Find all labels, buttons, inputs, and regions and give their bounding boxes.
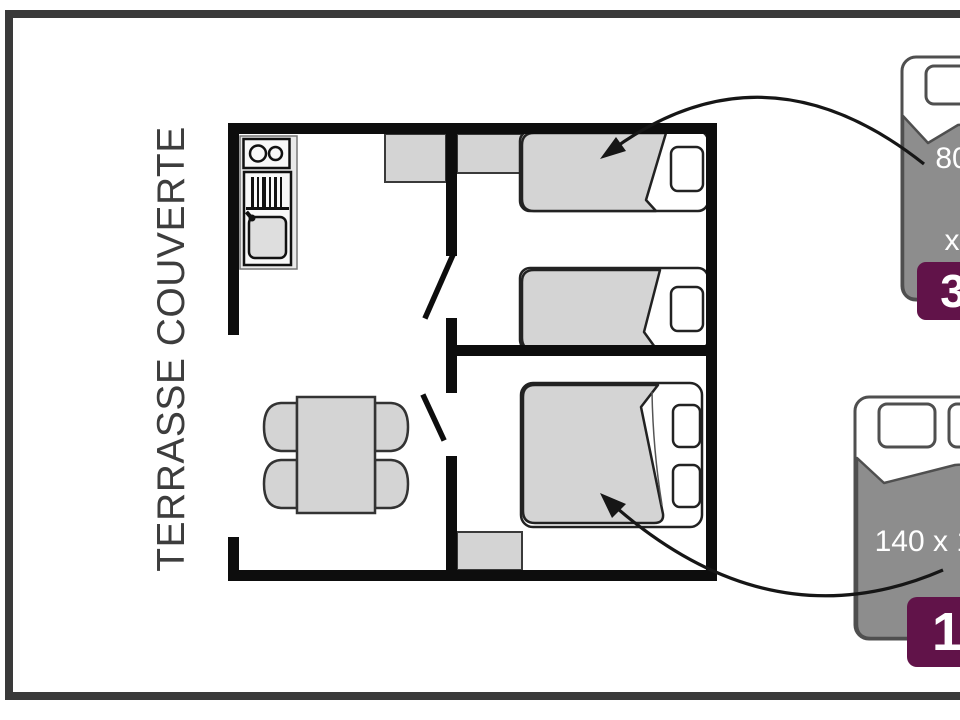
sink-icon (244, 172, 291, 265)
terrace-label: TERRASSE COUVERTE (148, 99, 196, 599)
double-bed-dimensions: 140 x 190 (860, 524, 960, 560)
frame-bottom (5, 692, 960, 700)
pillow (673, 465, 700, 507)
cabinet (385, 134, 446, 182)
frame-top (5, 10, 960, 18)
pillow (671, 287, 703, 331)
chair (375, 403, 408, 451)
wall-interior (446, 123, 457, 256)
dim-width: 80 (935, 142, 960, 175)
stove-icon (244, 139, 290, 168)
kitchenette (240, 136, 297, 269)
pillow (949, 404, 960, 447)
wall-interior (446, 456, 457, 581)
pillow (879, 404, 935, 447)
blanket (522, 270, 660, 350)
door-leaf (426, 257, 452, 316)
double-bed-count-badge: 1 (907, 597, 960, 667)
cabinet (457, 134, 522, 173)
wall-bottom (228, 570, 717, 581)
floorplan-image: TERRASSE COUVERTE 80 x 190 3 140 x 190 1 (0, 0, 960, 720)
entry-step (457, 532, 522, 570)
chair (264, 460, 297, 508)
chair (264, 403, 297, 451)
floorplan-drawing (0, 0, 960, 720)
pillow (671, 147, 703, 191)
wall-divider (446, 345, 717, 356)
wall-corner (228, 537, 239, 581)
dining-area (264, 397, 408, 513)
sink-basin (249, 217, 286, 258)
door-leaf (424, 397, 443, 438)
wall-left (228, 123, 239, 335)
pillow (926, 66, 960, 104)
frame-left (5, 10, 13, 700)
single-bed-2 (520, 268, 708, 350)
dining-table (297, 397, 375, 513)
blanket (522, 133, 666, 211)
burner-icon (250, 146, 266, 162)
single-bed-count-badge: 3 (917, 262, 960, 320)
dim-times: x (945, 224, 960, 257)
burner-icon (269, 147, 282, 160)
pillow (673, 405, 700, 447)
chair (375, 460, 408, 508)
blanket (523, 385, 663, 523)
